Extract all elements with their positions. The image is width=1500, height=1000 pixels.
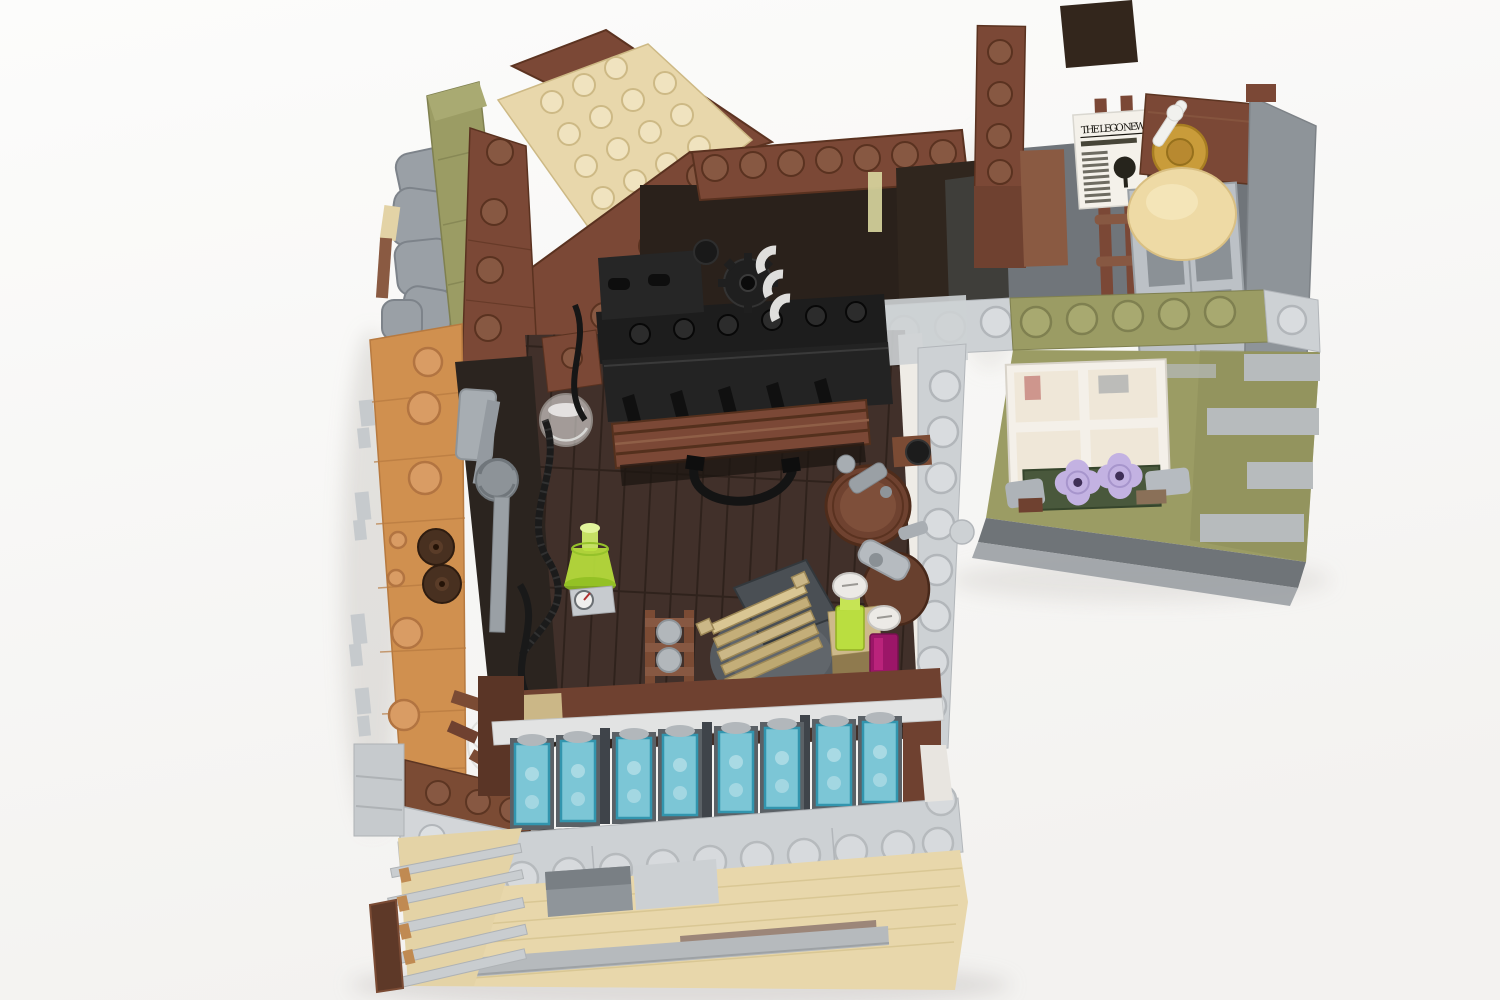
dark-top-bar	[1060, 0, 1138, 68]
tan-beam-block	[521, 693, 562, 721]
grey-panel	[633, 859, 719, 910]
small-gear	[694, 240, 718, 264]
gauge-tile	[570, 586, 615, 616]
pale-olive-sliver	[868, 172, 882, 232]
lego-scene-svg: THE LEGO NEWS	[0, 0, 1500, 1000]
brown-mid-wall	[1020, 149, 1068, 266]
wall-wheel-brace	[892, 435, 932, 468]
magenta-bottle	[868, 606, 900, 674]
slope-brown-cap	[1246, 84, 1276, 102]
column-side-tab	[950, 520, 974, 544]
window-reflection-red	[1024, 376, 1041, 401]
lego-photo: THE LEGO NEWS	[0, 0, 1500, 1000]
dark-brown-corner-bar	[370, 900, 403, 992]
window-reflection-grey	[1098, 375, 1129, 394]
grey-corner-blocks	[354, 744, 404, 836]
corner-pillar	[974, 26, 1026, 268]
tan-loaf	[1128, 168, 1236, 260]
lime-bottle	[833, 573, 867, 650]
